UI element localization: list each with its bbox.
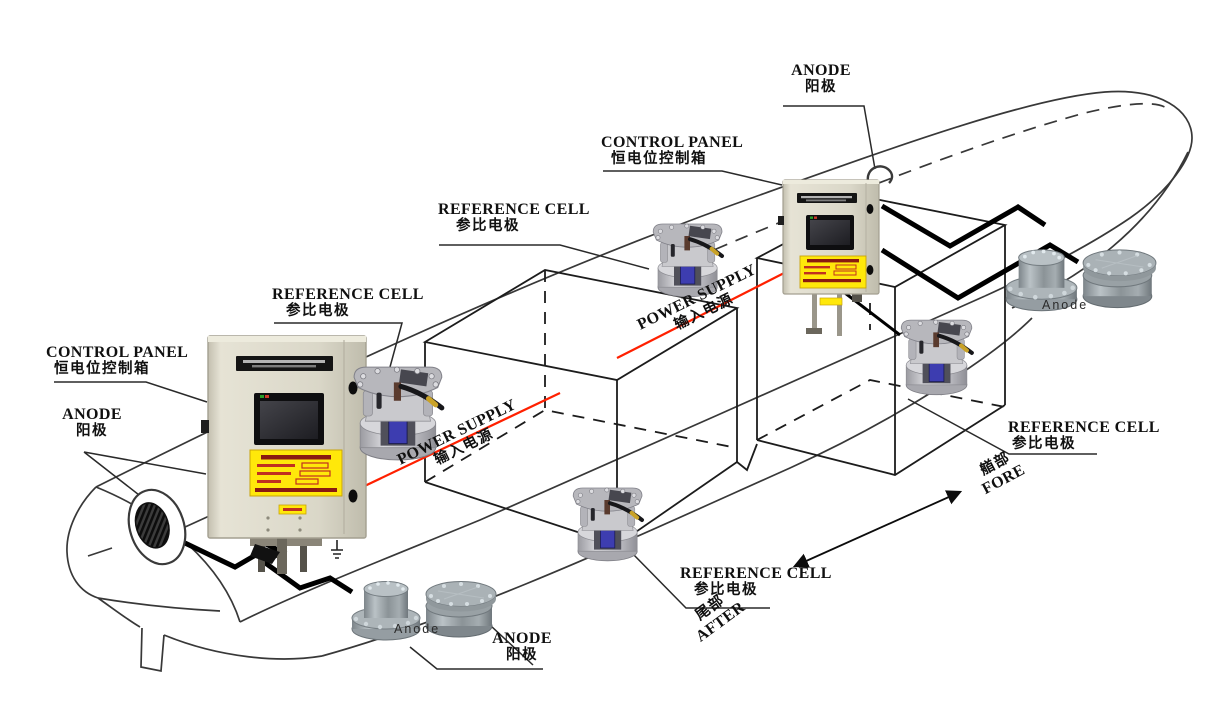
callout-anode-aft-hull-zh: 阳极: [50, 424, 134, 440]
callout-anode-aft-hull-en: ANODE: [50, 406, 134, 424]
callout-anode-fore: ANODE 阳极: [756, 62, 886, 96]
aft-hull-anode-disc: [120, 483, 195, 572]
callout-anode-aft-bottom-en: ANODE: [482, 630, 562, 648]
fore-aft-direction-arrow: [795, 492, 960, 566]
callout-reference-cell-fore-right: REFERENCE CELL 参比电极: [1008, 419, 1160, 453]
callout-control-panel-fore: CONTROL PANEL 恒电位控制箱: [601, 134, 743, 168]
callout-reference-cell-fore-top-en: REFERENCE CELL: [438, 201, 590, 219]
callout-control-panel-fore-zh: 恒电位控制箱: [611, 152, 743, 168]
callout-reference-cell-fore-right-en: REFERENCE CELL: [1008, 419, 1160, 437]
callout-anode-fore-en: ANODE: [756, 62, 886, 80]
callout-reference-cell-fore-top: REFERENCE CELL 参比电极: [438, 201, 590, 235]
callout-control-panel-aft: CONTROL PANEL 恒电位控制箱: [46, 344, 188, 378]
callout-control-panel-fore-en: CONTROL PANEL: [601, 134, 743, 152]
callout-anode-aft-bottom-zh: 阳极: [482, 648, 562, 664]
callout-reference-cell-fore-right-zh: 参比电极: [1012, 437, 1160, 453]
anode-tag-fore: Anode: [1042, 298, 1088, 312]
callout-reference-cell-aft-top-en: REFERENCE CELL: [272, 286, 424, 304]
control-panel-fore-unit: [778, 166, 892, 336]
callout-reference-cell-fore-top-zh: 参比电极: [456, 219, 590, 235]
reference-cell-fore-starboard: [901, 320, 972, 395]
anode-tag-aft: Anode: [394, 622, 440, 636]
callout-anode-aft-bottom: ANODE 阳极: [482, 630, 562, 664]
reference-cell-aft-starboard: [573, 488, 642, 561]
warning-label-aft: [250, 450, 342, 496]
callout-reference-cell-aft-bottom-en: REFERENCE CELL: [680, 565, 832, 583]
callout-control-panel-aft-zh: 恒电位控制箱: [54, 362, 188, 378]
control-panel-aft-unit: [201, 336, 366, 574]
callout-anode-fore-zh: 阳极: [756, 80, 886, 96]
callout-reference-cell-aft-top: REFERENCE CELL 参比电极: [272, 286, 424, 320]
warning-label-fore: [800, 256, 866, 288]
callout-anode-aft-hull: ANODE 阳极: [50, 406, 134, 440]
iccp-system-diagram: ANODE 阳极 CONTROL PANEL 恒电位控制箱 REFERENCE …: [0, 0, 1224, 701]
callout-reference-cell-aft-top-zh: 参比电极: [286, 304, 424, 320]
callout-control-panel-aft-en: CONTROL PANEL: [46, 344, 188, 362]
